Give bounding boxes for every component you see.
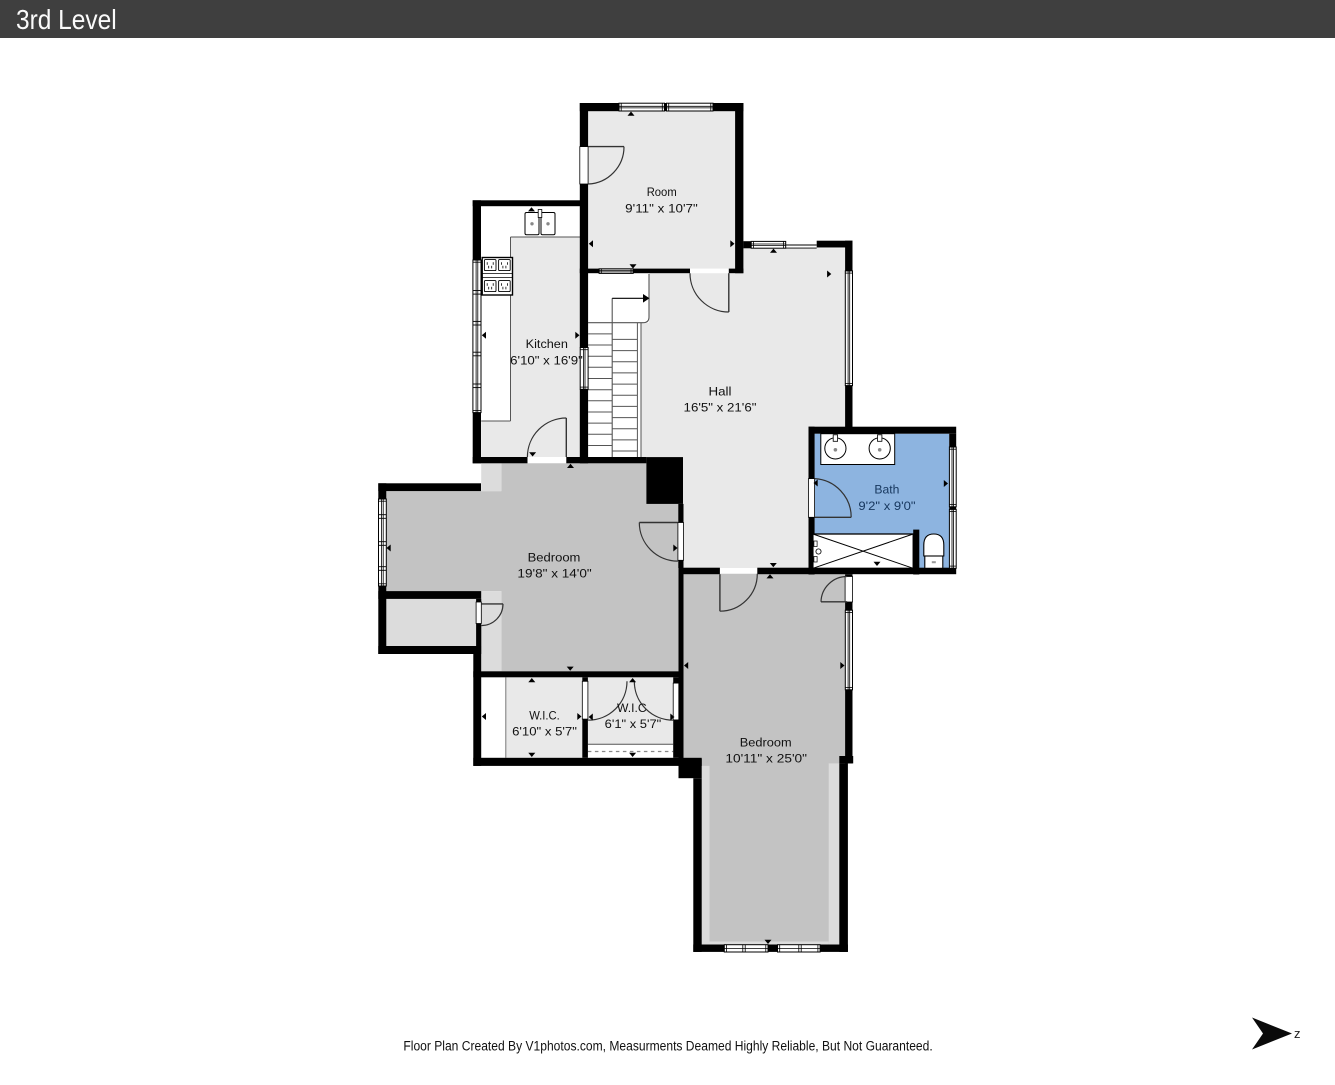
svg-text:Kitchen: Kitchen: [526, 337, 568, 351]
svg-text:9'11" x 10'7": 9'11" x 10'7": [625, 201, 698, 215]
svg-text:6'10" x 16'9": 6'10" x 16'9": [510, 353, 583, 367]
svg-text:W.I.C.: W.I.C.: [529, 709, 560, 723]
svg-text:6'1" x 5'7": 6'1" x 5'7": [605, 717, 662, 731]
svg-text:9'2" x 9'0": 9'2" x 9'0": [858, 499, 915, 513]
svg-text:Hall: Hall: [709, 384, 732, 398]
svg-text:6'10" x 5'7": 6'10" x 5'7": [512, 725, 577, 739]
svg-text:3rd Level: 3rd Level: [16, 4, 117, 35]
svg-text:Bedroom: Bedroom: [740, 735, 792, 749]
svg-text:Room: Room: [647, 185, 677, 199]
svg-text:W.I.C: W.I.C: [617, 701, 647, 715]
svg-text:Bath: Bath: [874, 483, 899, 497]
svg-text:z: z: [1294, 1026, 1301, 1041]
svg-text:19'8" x 14'0": 19'8" x 14'0": [517, 567, 591, 581]
svg-text:10'11" x 25'0": 10'11" x 25'0": [725, 752, 807, 766]
svg-text:Bedroom: Bedroom: [528, 551, 581, 565]
svg-text:Floor Plan Created By V1photos: Floor Plan Created By V1photos.com, Meas…: [403, 1039, 932, 1054]
svg-text:16'5" x 21'6": 16'5" x 21'6": [684, 401, 757, 415]
